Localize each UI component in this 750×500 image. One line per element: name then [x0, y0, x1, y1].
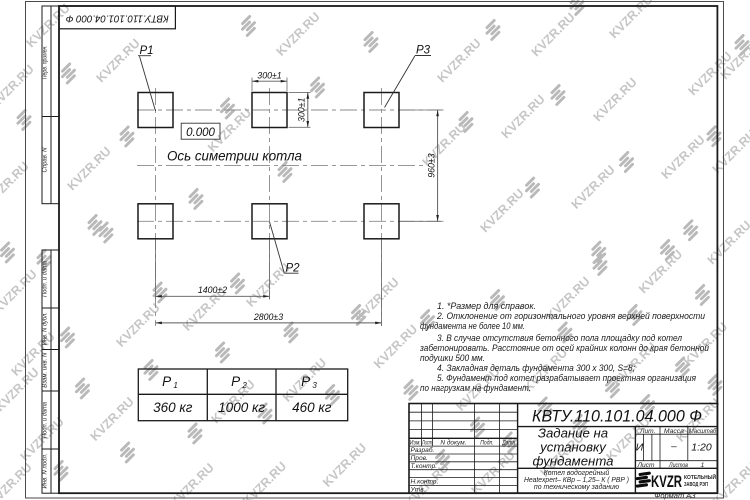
svg-text:Лист: Лист — [637, 462, 655, 469]
svg-text:забетонировать. Расстояние от: забетонировать. Расстояние от осей крайн… — [419, 343, 709, 353]
svg-text:подушки 500 мм.: подушки 500 мм. — [420, 353, 485, 363]
svg-text:Изм.: Изм. — [410, 439, 421, 446]
svg-text:Т.контр.: Т.контр. — [411, 463, 438, 470]
svg-text:Р2: Р2 — [286, 263, 301, 275]
svg-text:2. Отклонение от горизонтальн: 2. Отклонение от горизонтального уровня … — [436, 311, 705, 321]
svg-text:5. Фундамент под котел разраб: 5. Фундамент под котел разрабатывает про… — [437, 373, 696, 383]
svg-text:Утв.: Утв. — [410, 486, 426, 493]
svg-text:1400±2: 1400±2 — [198, 285, 227, 295]
svg-text:фундамента не более 10 мм.: фундамента не более 10 мм. — [420, 321, 525, 331]
svg-text:1000 кг: 1000 кг — [218, 400, 265, 415]
svg-text:Инв. N подл.: Инв. N подл. — [41, 453, 49, 488]
svg-text:Масса: Масса — [664, 428, 684, 435]
svg-text:Р3: Р3 — [416, 45, 431, 57]
svg-text:КВТУ.110.101.04.000 Ф: КВТУ.110.101.04.000 Ф — [66, 13, 169, 25]
svg-text:Heatexpert– КВр – 1,25– К ( РВ: Heatexpert– КВр – 1,25– К ( РВР ) — [524, 477, 629, 484]
svg-text:Н.контр.: Н.контр. — [411, 479, 439, 486]
svg-text:Лист: Лист — [421, 439, 432, 446]
svg-text:по техническому заданию: по техническому заданию — [534, 483, 619, 491]
svg-text:3. В случае отсутствия бетонн: 3. В случае отсутствия бетонного пола пл… — [437, 333, 682, 343]
svg-text:1:20: 1:20 — [691, 442, 712, 454]
svg-text:И: И — [636, 442, 644, 454]
svg-text:Котел водогрейный: Котел водогрейный — [544, 469, 610, 477]
svg-text:по нагрузкам на фундамент.: по нагрузкам на фундамент. — [420, 383, 531, 393]
svg-text:Перв. примен.: Перв. примен. — [42, 45, 49, 79]
svg-text:фундамента: фундамента — [532, 454, 613, 469]
svg-text:ЗАВОД РЭП: ЗАВОД РЭП — [684, 482, 708, 488]
svg-text:460 кг: 460 кг — [292, 400, 332, 415]
svg-text:Инв. N дубл.: Инв. N дубл. — [41, 312, 49, 345]
svg-text:0.000: 0.000 — [186, 127, 215, 139]
svg-text:Справ. N: Справ. N — [42, 147, 49, 172]
svg-text:Дата: Дата — [502, 439, 515, 446]
svg-text:1. *Размер для справок.: 1. *Размер для справок. — [437, 301, 536, 311]
svg-text:1: 1 — [701, 462, 705, 469]
svg-text:Ось симетрии котла: Ось симетрии котла — [167, 149, 302, 164]
svg-text:Формат АЗ: Формат АЗ — [654, 491, 696, 500]
svg-text:300±1: 300±1 — [297, 97, 307, 122]
svg-text:Масштаб: Масштаб — [689, 427, 717, 435]
svg-text:Подп.: Подп. — [480, 438, 494, 446]
svg-text:Лит.: Лит. — [639, 428, 656, 435]
svg-text:960±3: 960±3 — [426, 153, 436, 178]
svg-text:300±1: 300±1 — [257, 70, 282, 80]
svg-text:КОТЕЛЬНЫЙ: КОТЕЛЬНЫЙ — [684, 473, 716, 481]
svg-text:KVZR: KVZR — [651, 472, 682, 491]
svg-text:КВТУ.110.101.04.000 Ф: КВТУ.110.101.04.000 Ф — [532, 408, 702, 426]
svg-text:Листов: Листов — [668, 462, 688, 469]
svg-text:360 кг: 360 кг — [153, 400, 193, 415]
svg-text:Пров.: Пров. — [411, 455, 429, 462]
svg-text:N докум.: N докум. — [440, 438, 466, 446]
svg-text:Разраб.: Разраб. — [411, 446, 435, 454]
svg-text:–: – — [670, 442, 677, 453]
svg-text:Взам. инв. N: Взам. инв. N — [42, 352, 49, 387]
svg-text:4. Закладная деталь фундамент: 4. Закладная деталь фундамента 300 х 300… — [437, 363, 635, 373]
svg-text:установку: установку — [539, 440, 607, 455]
svg-text:2800±3: 2800±3 — [253, 312, 283, 322]
svg-text:Подп. и дата: Подп. и дата — [41, 261, 49, 297]
svg-text:Задание на: Задание на — [538, 426, 608, 441]
svg-text:Р1: Р1 — [140, 45, 154, 57]
svg-text:Подп. и дата: Подп. и дата — [41, 402, 49, 438]
